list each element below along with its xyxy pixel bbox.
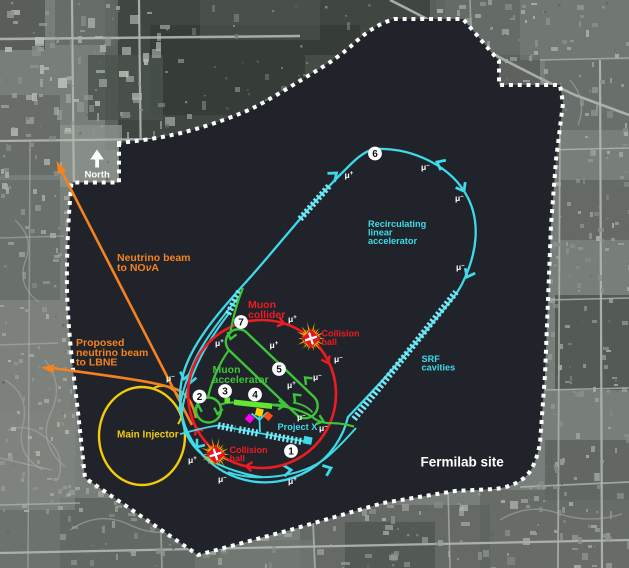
svg-text:Fermilab site: Fermilab site — [421, 455, 505, 470]
svg-text:North: North — [85, 170, 111, 181]
svg-text:5: 5 — [276, 364, 282, 375]
svg-text:1: 1 — [288, 446, 294, 457]
svg-text:6: 6 — [372, 149, 378, 160]
svg-text:7: 7 — [238, 317, 244, 328]
svg-text:3: 3 — [222, 386, 228, 397]
svg-text:4: 4 — [252, 390, 258, 401]
svg-text:2: 2 — [197, 392, 203, 403]
svg-text:Main Injector: Main Injector — [117, 430, 179, 441]
svg-text:Project X: Project X — [278, 422, 319, 432]
